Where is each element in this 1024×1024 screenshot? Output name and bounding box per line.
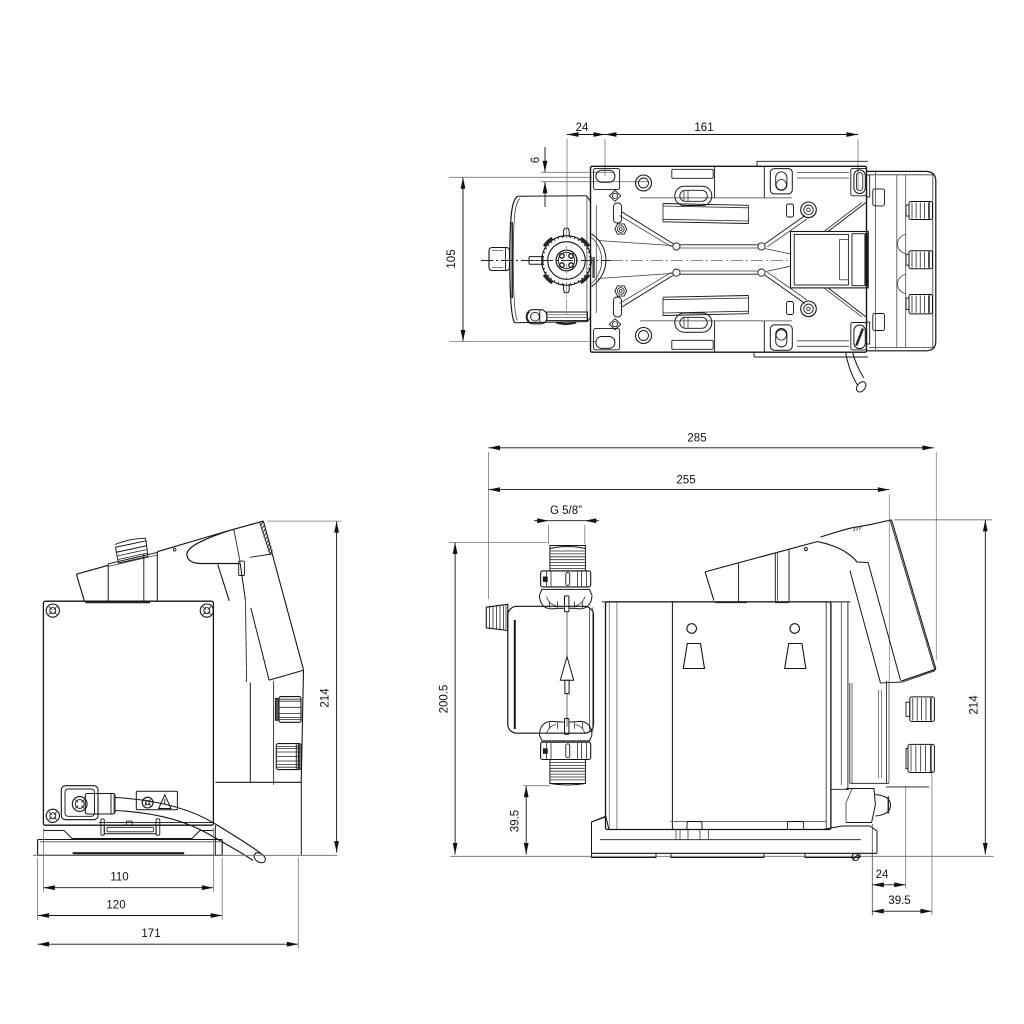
svg-text:39.5: 39.5 [888,895,910,907]
svg-text:214: 214 [969,695,981,715]
svg-text:171: 171 [141,928,160,940]
svg-text:110: 110 [110,872,128,884]
svg-text:200.5: 200.5 [438,685,450,714]
svg-text:161: 161 [694,122,713,134]
svg-text:285: 285 [687,433,706,445]
svg-text:255: 255 [676,474,695,486]
svg-text:39.5: 39.5 [510,810,522,832]
svg-text:214: 214 [320,688,332,708]
svg-text:G 5/8”: G 5/8” [550,505,582,517]
svg-text:24: 24 [876,869,889,881]
svg-text:24: 24 [576,122,589,134]
svg-text:6: 6 [530,157,542,163]
svg-text:120: 120 [106,899,125,911]
svg-text:105: 105 [446,249,458,268]
